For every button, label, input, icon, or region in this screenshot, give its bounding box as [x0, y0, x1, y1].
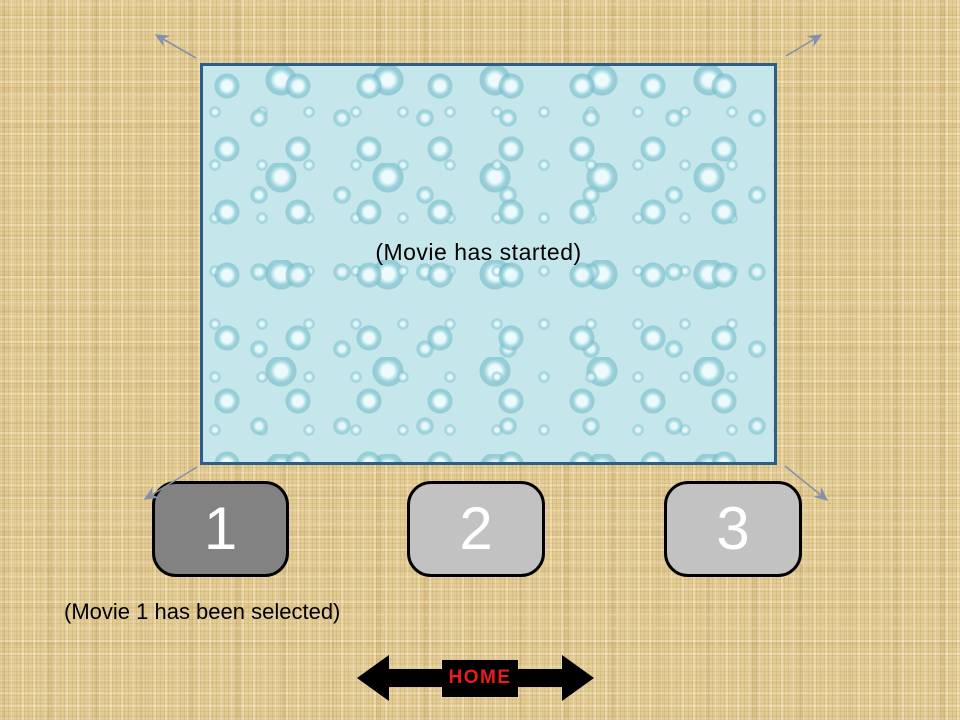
movie-button-1[interactable]: 1: [152, 481, 289, 577]
movie-button-1-label: 1: [204, 499, 237, 559]
prev-arrow-button[interactable]: [357, 653, 442, 703]
movie-button-3-label: 3: [716, 499, 749, 559]
home-button-label: HOME: [449, 667, 512, 689]
next-arrow-button[interactable]: [518, 653, 594, 703]
home-button[interactable]: HOME: [442, 660, 518, 697]
movie-button-2-label: 2: [459, 499, 492, 559]
selection-caption: (Movie 1 has been selected): [64, 599, 340, 625]
movie-player-slide: (Movie has started) 1 2 3 (Movie 1 has b…: [0, 0, 960, 720]
arrow-up-left-icon: [156, 35, 196, 58]
movie-status-text: (Movie has started): [375, 239, 581, 266]
movie-button-3[interactable]: 3: [664, 481, 802, 577]
arrow-up-right-icon: [786, 35, 821, 56]
movie-display-area[interactable]: (Movie has started): [200, 63, 777, 465]
movie-button-2[interactable]: 2: [407, 481, 545, 577]
bottom-nav-bar: HOME: [357, 653, 594, 703]
right-block-arrow-icon: [518, 655, 594, 701]
left-block-arrow-icon: [357, 655, 442, 701]
